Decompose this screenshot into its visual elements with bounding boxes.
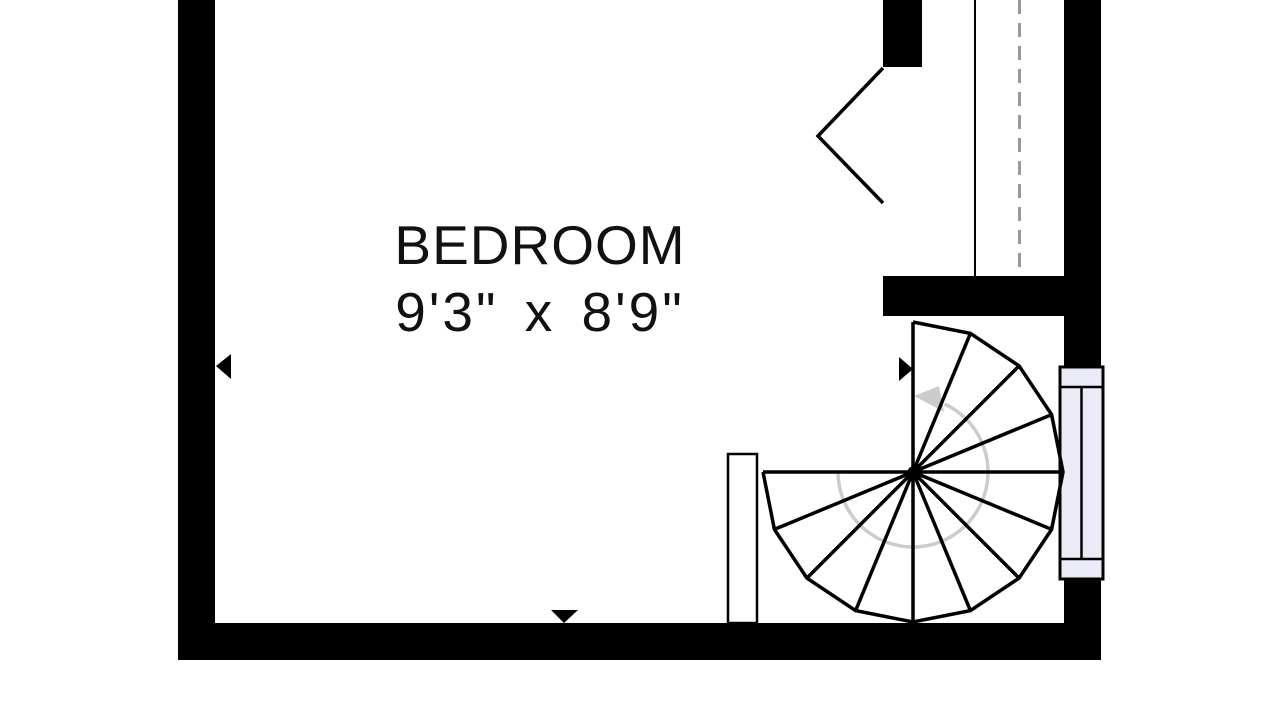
door-jamb-wall bbox=[883, 0, 922, 67]
interior-wall bbox=[883, 276, 1101, 316]
double-door bbox=[818, 68, 883, 203]
left-wall bbox=[178, 0, 215, 660]
dimension-arrow-left-icon bbox=[216, 354, 231, 379]
floor-plan-drawing bbox=[0, 0, 1280, 720]
room-name: BEDROOM bbox=[240, 212, 840, 278]
room-dimensions: 9'3" x 8'9" bbox=[240, 278, 840, 346]
floor-plan: BEDROOM 9'3" x 8'9" bbox=[0, 0, 1280, 720]
right-wall-lower bbox=[1064, 579, 1101, 660]
door-leaf bbox=[728, 454, 757, 623]
bottom-wall bbox=[178, 623, 1101, 660]
dimension-arrow-right-icon bbox=[899, 357, 913, 381]
stair-center-post bbox=[908, 467, 919, 478]
room-label: BEDROOM 9'3" x 8'9" bbox=[240, 212, 840, 346]
dimension-arrow-down-icon bbox=[551, 610, 578, 623]
spiral-staircase bbox=[763, 322, 1063, 622]
window bbox=[1060, 367, 1103, 579]
